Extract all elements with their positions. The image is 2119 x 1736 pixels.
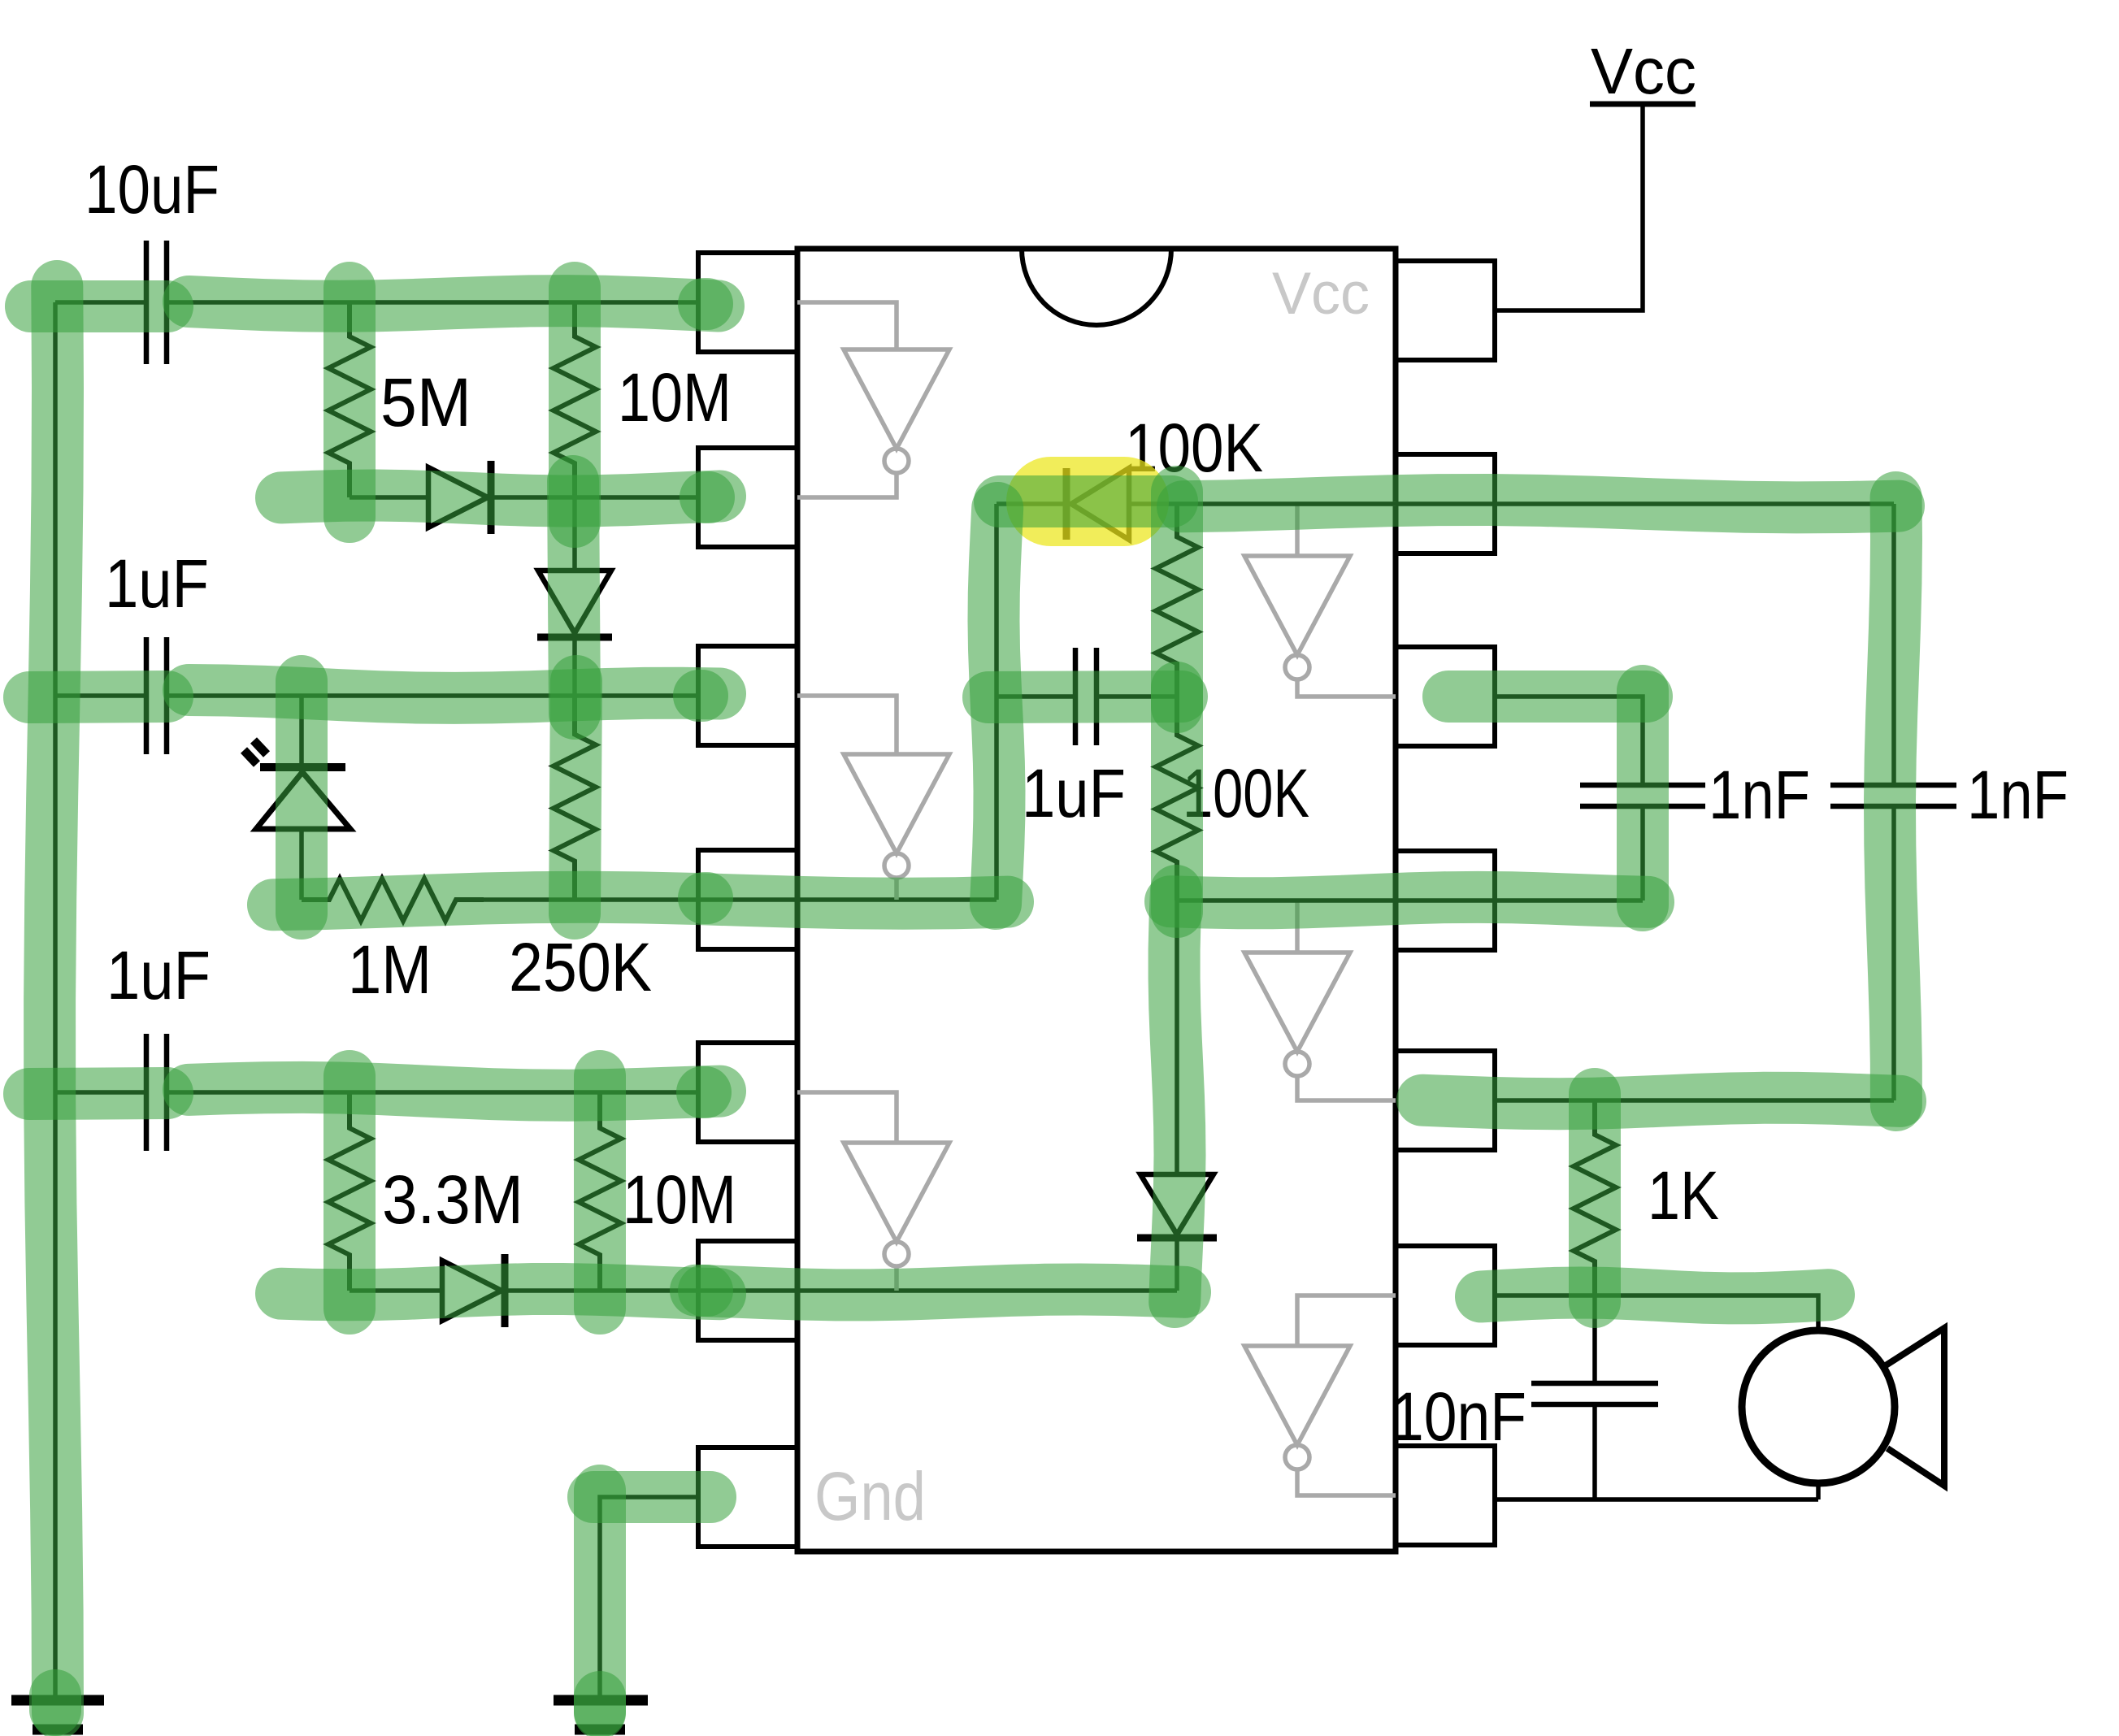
svg-text:1nF: 1nF bbox=[1967, 757, 2069, 833]
svg-text:10M: 10M bbox=[618, 359, 732, 436]
svg-text:10M: 10M bbox=[623, 1161, 736, 1238]
svg-text:Vcc: Vcc bbox=[1591, 35, 1696, 107]
svg-text:1uF: 1uF bbox=[106, 937, 211, 1013]
svg-text:5M: 5M bbox=[380, 364, 471, 441]
svg-text:3.3M: 3.3M bbox=[382, 1161, 523, 1238]
svg-text:Gnd: Gnd bbox=[814, 1458, 926, 1534]
svg-text:10uF: 10uF bbox=[85, 151, 219, 228]
svg-text:250K: 250K bbox=[509, 929, 652, 1005]
svg-text:1uF: 1uF bbox=[1022, 755, 1126, 831]
svg-text:1uF: 1uF bbox=[105, 545, 209, 622]
svg-text:1M: 1M bbox=[348, 931, 432, 1008]
svg-text:Vcc: Vcc bbox=[1272, 261, 1370, 327]
svg-text:1nF: 1nF bbox=[1709, 757, 1810, 833]
svg-text:1K: 1K bbox=[1648, 1157, 1719, 1234]
svg-text:10nF: 10nF bbox=[1391, 1378, 1526, 1455]
